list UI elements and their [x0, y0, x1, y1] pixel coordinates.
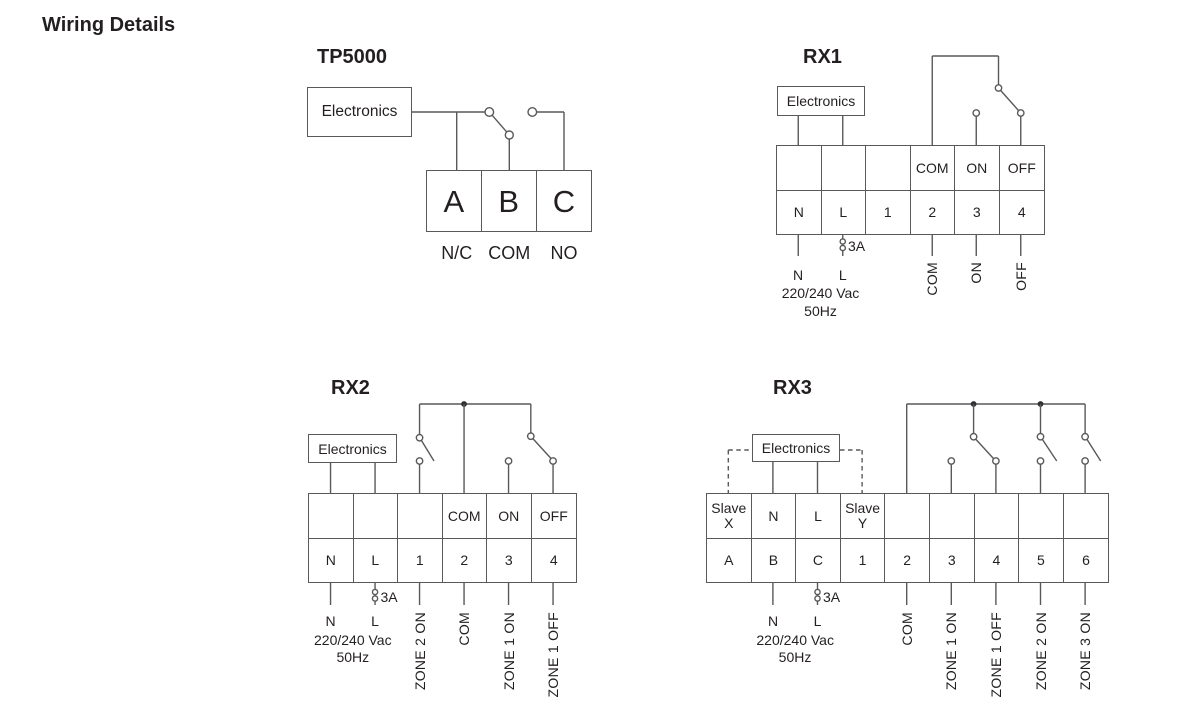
rx3-output-com: COM: [899, 612, 915, 646]
rx3-switch2-pivot: [1037, 434, 1043, 440]
tp5000-terminal-block: A B C: [426, 170, 592, 232]
rx1-contact-off: [1018, 110, 1024, 116]
rx1-supply-voltage: 220/240 Vac: [772, 285, 869, 301]
terminal-cell: 1: [398, 539, 443, 582]
terminal-cell: N: [752, 494, 797, 539]
terminal-cell: L: [796, 494, 841, 539]
rx2-output-zone1-on: ZONE 1 ON: [501, 612, 517, 690]
tp5000-electronics-box: Electronics: [307, 87, 412, 137]
rx3-supply-voltage: 220/240 Vac: [747, 632, 844, 648]
terminal-cell: OFF: [532, 494, 577, 539]
terminal-cell: 3: [487, 539, 532, 582]
rx1-supply-neutral: N: [778, 267, 818, 283]
terminal-cell: [1064, 494, 1109, 539]
rx3-fuse-label: 3A: [823, 589, 840, 605]
terminal-cell: 4: [975, 539, 1020, 582]
terminal-cell: 5: [1019, 539, 1064, 582]
rx2-title: RX2: [331, 378, 370, 398]
rx3-supply-frequency: 50Hz: [770, 649, 820, 665]
rx1-fuse-label: 3A: [848, 238, 865, 254]
terminal-cell: 3: [955, 191, 1000, 234]
terminal-cell: 3: [930, 539, 975, 582]
rx3-fuse: [815, 589, 820, 601]
terminal-cell: OFF: [1000, 146, 1045, 191]
terminal-cell: N: [777, 191, 822, 234]
terminal-cell: [354, 494, 399, 539]
rx2-switch1-pivot: [416, 435, 422, 441]
terminal-cell: [930, 494, 975, 539]
tp5000-label-nc: N/C: [427, 243, 487, 264]
terminal-cell: 2: [885, 539, 930, 582]
terminal-cell-slave-x: Slave X: [707, 494, 752, 539]
terminal-cell-slave-y: Slave Y: [841, 494, 886, 539]
rx2-supply-frequency: 50Hz: [328, 649, 378, 665]
terminal-cell: ON: [487, 494, 532, 539]
terminal-cell-a: A: [427, 171, 482, 231]
rx1-electronics-box: Electronics: [777, 86, 865, 116]
tp5000-switch-blade: [492, 115, 507, 132]
tp5000-title: TP5000: [317, 47, 387, 67]
terminal-cell: L: [354, 539, 399, 582]
tp5000-label-no: NO: [534, 243, 594, 264]
rx2-switch2-blade: [533, 439, 551, 459]
tp5000-wiring: [412, 108, 564, 170]
rx2-terminal-block: COM ON OFF N L 1 2 3 4: [308, 493, 577, 583]
tp5000-electronics-label: Electronics: [322, 103, 398, 121]
rx3-switch1-blade: [976, 439, 994, 459]
rx3-title: RX3: [773, 378, 812, 398]
rx2-electronics-label: Electronics: [318, 441, 386, 457]
rx2-switch2-pivot: [528, 433, 534, 439]
terminal-cell-b: B: [482, 171, 537, 231]
rx2-output-com: COM: [456, 612, 472, 646]
rx2-contact-off: [550, 458, 556, 464]
terminal-cell: 4: [532, 539, 577, 582]
rx1-supply-live: L: [823, 267, 863, 283]
rx1-electronics-label: Electronics: [787, 93, 855, 109]
rx2-output-zone2-on: ZONE 2 ON: [412, 612, 428, 690]
rx3-switch2-contact: [1037, 458, 1043, 464]
rx3-supply-neutral: N: [753, 613, 793, 629]
terminal-cell: A: [707, 539, 752, 582]
terminal-cell: L: [822, 191, 867, 234]
terminal-cell: [866, 146, 911, 191]
rx1-output-off: OFF: [1013, 262, 1029, 291]
rx2-switch1-blade: [421, 440, 434, 461]
terminal-cell-c: C: [537, 171, 592, 231]
rx2-contact-on: [505, 458, 511, 464]
terminal-cell: [398, 494, 443, 539]
terminal-cell: 6: [1064, 539, 1109, 582]
rx3-output-zone1-off: ZONE 1 OFF: [988, 612, 1004, 697]
terminal-cell: COM: [443, 494, 488, 539]
terminal-cell: C: [796, 539, 841, 582]
rx3-switch1-pivot: [970, 434, 976, 440]
rx3-output-zone1-on: ZONE 1 ON: [943, 612, 959, 690]
rx2-fuse-label: 3A: [381, 589, 398, 605]
tp5000-switch-contact-no: [528, 108, 537, 117]
terminal-cell: N: [309, 539, 354, 582]
terminal-cell: 2: [911, 191, 956, 234]
rx1-output-com: COM: [924, 262, 940, 296]
tp5000-switch-contact-com: [505, 131, 513, 139]
rx3-switch3-blade: [1087, 439, 1101, 461]
rx2-fuse: [372, 589, 377, 601]
rx3-switch2-blade: [1042, 439, 1056, 461]
terminal-cell: 1: [866, 191, 911, 234]
rx3-contact-zone1-off: [993, 458, 999, 464]
rx2-output-zone1-off: ZONE 1 OFF: [545, 612, 561, 697]
rx2-supply-voltage: 220/240 Vac: [304, 632, 401, 648]
terminal-cell: [309, 494, 354, 539]
terminal-cell: [975, 494, 1020, 539]
rx3-output-zone2-on: ZONE 2 ON: [1033, 612, 1049, 690]
rx1-terminal-block: COM ON OFF N L 1 2 3 4: [776, 145, 1045, 235]
terminal-cell: [822, 146, 867, 191]
rx2-supply-neutral: N: [311, 613, 351, 629]
terminal-cell: ON: [955, 146, 1000, 191]
rx3-switch3-pivot: [1082, 434, 1088, 440]
terminal-cell: [1019, 494, 1064, 539]
terminal-cell: 1: [841, 539, 886, 582]
rx2-switch1-contact: [416, 458, 422, 464]
rx3-output-zone3-on: ZONE 3 ON: [1077, 612, 1093, 690]
rx3-switch3-contact: [1082, 458, 1088, 464]
wiring-details-page: Wiring Details: [0, 0, 1183, 723]
rx1-supply-frequency: 50Hz: [796, 303, 846, 319]
rx1-title: RX1: [803, 47, 842, 67]
terminal-cell: [777, 146, 822, 191]
terminal-cell: [885, 494, 930, 539]
terminal-cell: 4: [1000, 191, 1045, 234]
rx3-electronics-box: Electronics: [752, 434, 840, 462]
terminal-cell: 2: [443, 539, 488, 582]
tp5000-switch-pivot: [485, 108, 494, 117]
terminal-cell: B: [752, 539, 797, 582]
rx3-terminal-block: Slave X N L Slave Y A B C 1 2 3 4 5 6: [706, 493, 1109, 583]
tp5000-label-com: COM: [479, 243, 539, 264]
rx1-fuse: [840, 239, 845, 251]
rx2-electronics-box: Electronics: [308, 434, 397, 463]
terminal-cell: COM: [911, 146, 956, 191]
wiring-lines: [0, 0, 1183, 723]
rx3-supply-live: L: [798, 613, 838, 629]
rx1-switch-pivot: [995, 85, 1001, 91]
rx2-supply-live: L: [355, 613, 395, 629]
rx1-output-on: ON: [968, 262, 984, 284]
rx3-electronics-label: Electronics: [762, 440, 830, 456]
rx1-contact-on: [973, 110, 979, 116]
rx1-switch-blade: [1001, 90, 1019, 110]
rx3-contact-zone1-on: [948, 458, 954, 464]
